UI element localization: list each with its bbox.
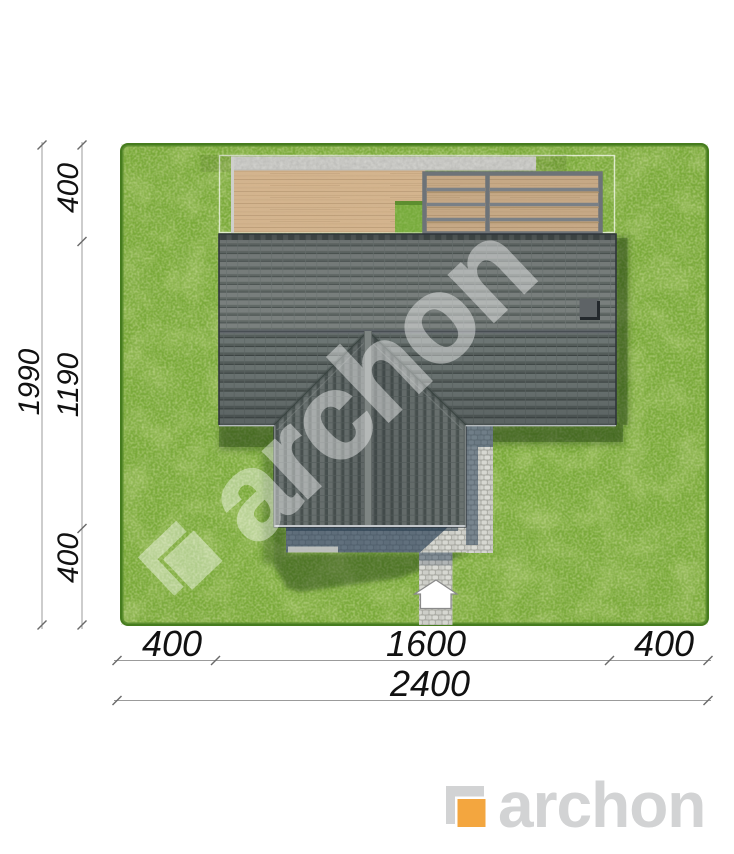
svg-text:400: 400: [634, 623, 694, 664]
svg-text:400: 400: [52, 533, 85, 583]
svg-text:400: 400: [52, 163, 85, 213]
svg-text:1600: 1600: [386, 623, 466, 664]
svg-text:2400: 2400: [389, 663, 470, 704]
svg-text:400: 400: [142, 623, 202, 664]
svg-text:archon: archon: [498, 769, 705, 841]
svg-text:1990: 1990: [13, 348, 46, 415]
svg-text:1190: 1190: [52, 352, 85, 417]
